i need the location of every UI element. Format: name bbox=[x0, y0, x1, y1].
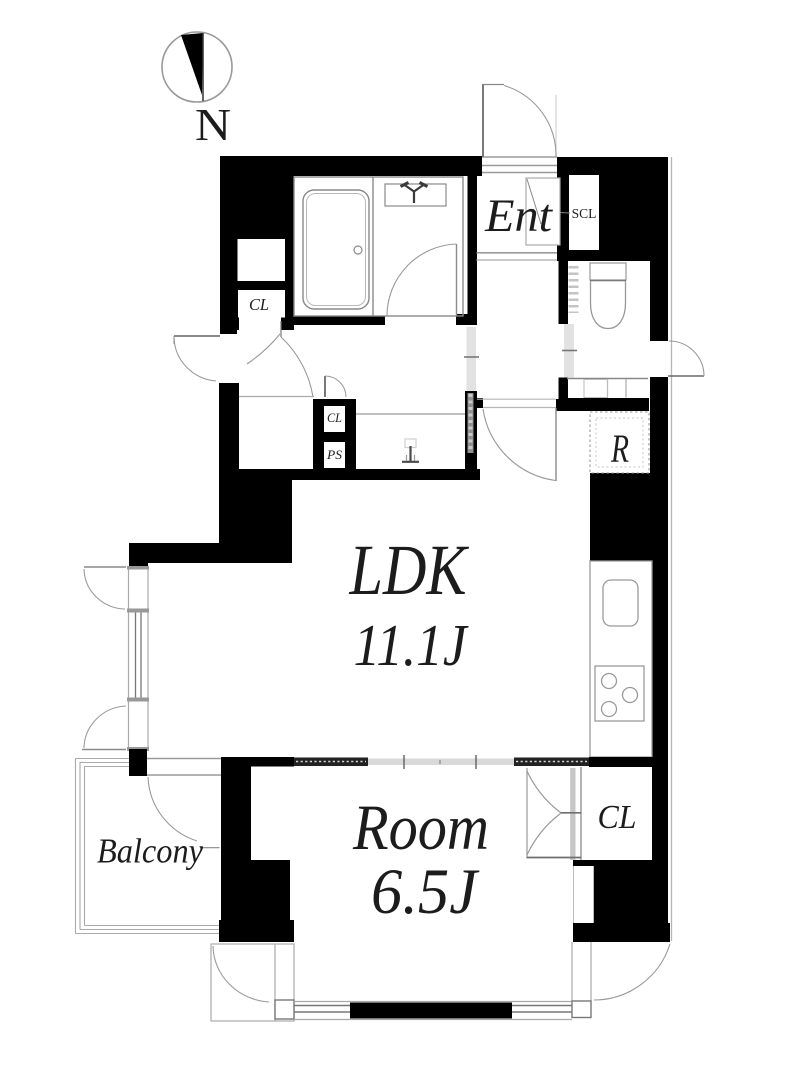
svg-text:Ent: Ent bbox=[484, 190, 553, 242]
svg-text:LDK: LDK bbox=[349, 530, 470, 610]
svg-text:R: R bbox=[610, 426, 629, 471]
svg-text:CL: CL bbox=[598, 799, 637, 836]
svg-text:11.1J: 11.1J bbox=[354, 612, 470, 678]
svg-text:CL: CL bbox=[327, 411, 342, 425]
svg-text:Balcony: Balcony bbox=[97, 832, 203, 871]
svg-text:Room: Room bbox=[352, 792, 489, 864]
svg-text:N: N bbox=[195, 99, 231, 150]
svg-text:6.5J: 6.5J bbox=[371, 856, 480, 928]
svg-text:CL: CL bbox=[249, 295, 269, 314]
svg-text:SCL: SCL bbox=[572, 206, 597, 221]
svg-text:PS: PS bbox=[326, 448, 343, 462]
